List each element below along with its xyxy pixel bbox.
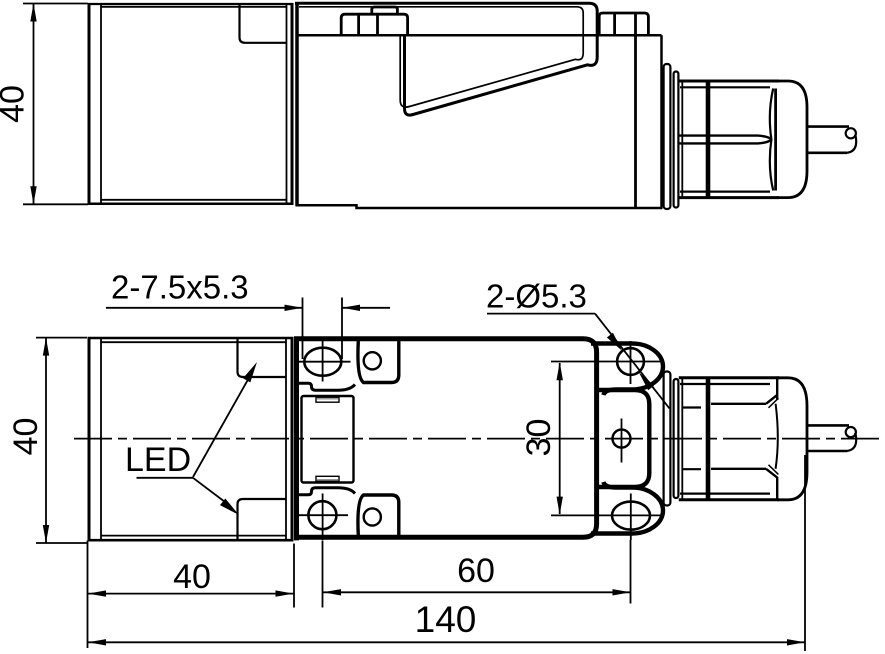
- svg-text:60: 60: [457, 552, 495, 590]
- svg-text:40: 40: [7, 418, 45, 456]
- svg-text:40: 40: [173, 558, 211, 596]
- svg-text:LED: LED: [125, 441, 191, 479]
- svg-text:2-7.5x5.3: 2-7.5x5.3: [111, 269, 249, 306]
- svg-text:30: 30: [520, 419, 558, 457]
- svg-text:2-Ø5.3: 2-Ø5.3: [486, 278, 587, 315]
- svg-text:140: 140: [415, 599, 477, 640]
- svg-text:40: 40: [0, 85, 32, 123]
